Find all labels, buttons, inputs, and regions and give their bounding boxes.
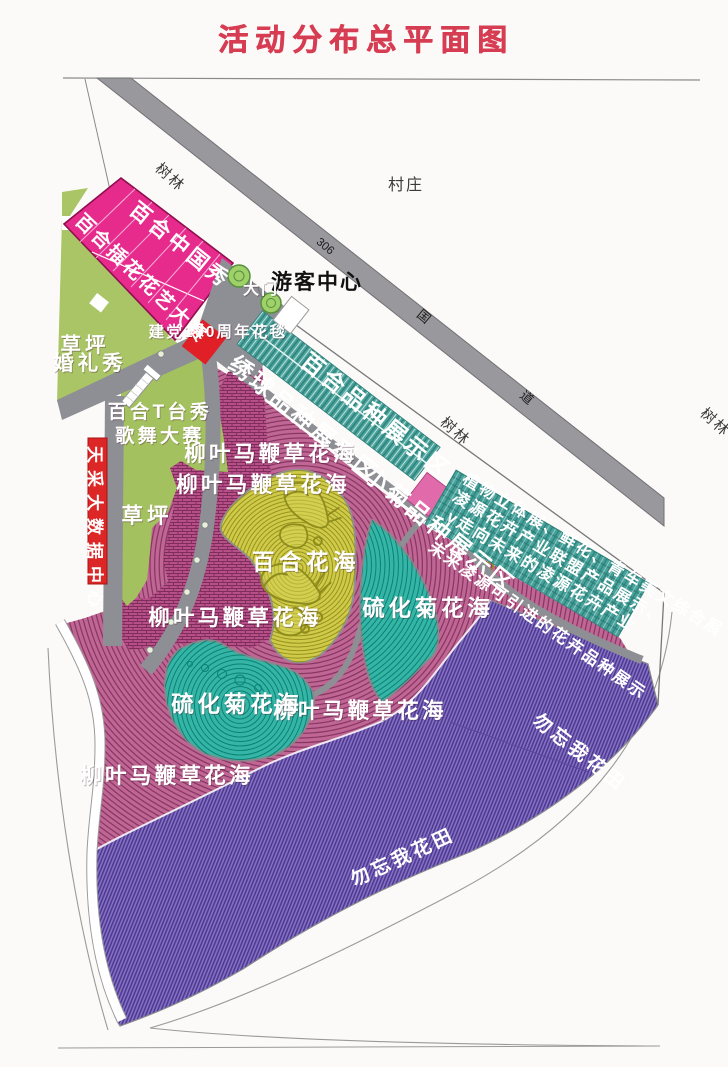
svg-text:游客中心: 游客中心 — [271, 270, 363, 294]
svg-text:建党100周年花毯: 建党100周年花毯 — [149, 322, 288, 341]
svg-text:柳叶马鞭草花海: 柳叶马鞭草花海 — [176, 472, 350, 497]
svg-text:百合花海: 百合花海 — [252, 549, 360, 575]
svg-text:百合T台秀: 百合T台秀 — [108, 400, 213, 423]
svg-text:柳叶马鞭草花海: 柳叶马鞭草花海 — [80, 763, 254, 788]
svg-text:村庄: 村庄 — [388, 176, 424, 194]
svg-text:柳叶马鞭草花海: 柳叶马鞭草花海 — [184, 441, 358, 466]
svg-text:柳叶马鞭草花海: 柳叶马鞭草花海 — [148, 605, 322, 630]
svg-text:活动分布总平面图: 活动分布总平面图 — [218, 25, 514, 58]
svg-text:婚礼秀: 婚礼秀 — [53, 351, 127, 375]
svg-text:天采大数据中心: 天采大数据中心 — [85, 446, 105, 614]
svg-text:大门: 大门 — [243, 279, 279, 298]
svg-text:硫化菊花海: 硫化菊花海 — [362, 595, 494, 621]
svg-text:草坪: 草坪 — [121, 503, 172, 528]
svg-text:硫化菊花海: 硫化菊花海 — [171, 691, 303, 717]
